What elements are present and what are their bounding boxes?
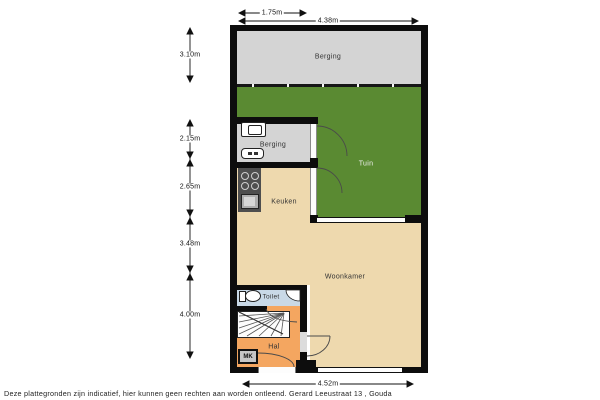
bottom-wall-t-block [296, 360, 316, 373]
outer-wall-right [421, 25, 428, 373]
garden-window [317, 217, 405, 223]
staircase [237, 311, 290, 338]
dim-left-1: 2.15m [178, 136, 202, 143]
room-label-tuin: Tuin [359, 161, 374, 168]
room-label-toilet: Toilet [263, 294, 280, 301]
stove-burner-icon [241, 182, 249, 190]
dim-bottom-0: 4.52m [316, 381, 340, 388]
room-label-hal: Hal [268, 344, 279, 351]
hal-woonkamer-door-gap [300, 332, 307, 352]
room-label-berging-outdoor: Berging [315, 54, 341, 61]
stove-burner-icon [251, 172, 259, 180]
garden-window-right-block [405, 215, 421, 223]
disclaimer-text: Deze plattegronden zijn indicatief, hier… [4, 389, 392, 398]
garden-wall-segment-mid [310, 158, 318, 168]
dim-left-4: 4.00m [178, 312, 202, 319]
room-label-keuken: Keuken [271, 199, 297, 206]
hal-woonkamer-wall [300, 285, 307, 367]
washing-machine-icon [241, 122, 266, 137]
outer-wall-left [230, 25, 237, 373]
outer-wall-top [230, 25, 428, 31]
stove-burner-icon [241, 172, 249, 180]
dim-left-3: 3.48m [178, 241, 202, 248]
front-door-threshold [258, 367, 296, 373]
room-label-woonkamer: Woonkamer [325, 274, 365, 281]
washing-machine-drum [248, 125, 262, 135]
front-window [318, 367, 402, 373]
toilet-bowl-icon [245, 290, 261, 302]
garden-door-wall [310, 124, 317, 223]
room-woonkamer-floor [310, 223, 421, 367]
dim-top-1: 4.38m [316, 18, 340, 25]
room-label-berging-indoor: Berging [260, 142, 286, 149]
kitchen-sink-icon [241, 194, 259, 209]
meterkast-box: MK [238, 349, 258, 364]
dim-left-2: 2.65m [178, 184, 202, 191]
dim-top-0: 1.75m [260, 10, 284, 17]
stove-burner-icon [251, 182, 259, 190]
floorplan-canvas: MK [0, 0, 600, 400]
boiler-icon [241, 148, 264, 159]
meterkast-label: MK [243, 354, 252, 360]
boiler-detail [248, 152, 252, 155]
kitchen-sink-basin [244, 197, 255, 206]
boiler-detail-2 [254, 152, 258, 155]
dim-left-0: 3.10m [178, 52, 202, 59]
